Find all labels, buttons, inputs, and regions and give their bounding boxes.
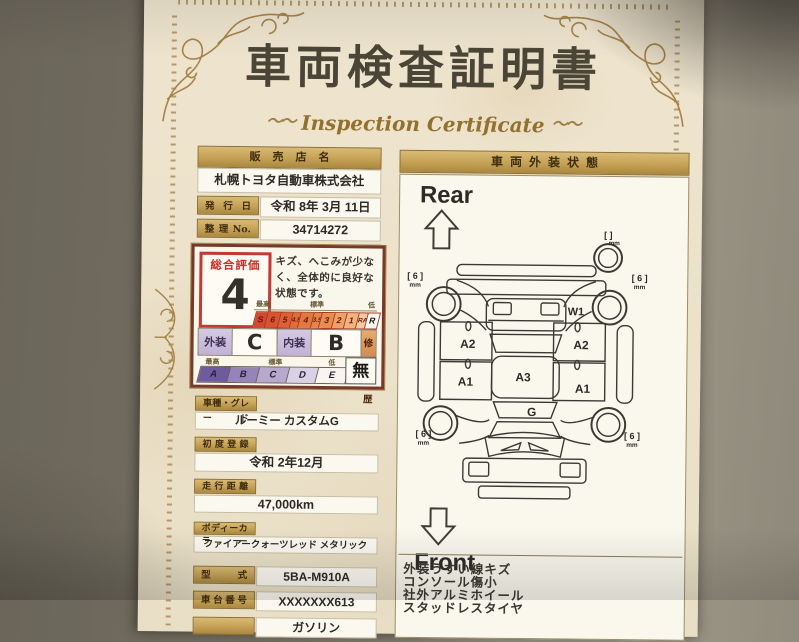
zone-label-a3: A3 <box>515 370 531 384</box>
issue-date-value: 令和 8年 3月 11日 <box>260 196 381 218</box>
zone-label-a2: A2 <box>573 338 589 352</box>
letter-scale-cell: B <box>227 367 260 382</box>
letter-scale-cell: C <box>257 367 290 382</box>
zone-label-w1: W1 <box>568 306 584 318</box>
letter-scale-cell: D <box>286 368 319 383</box>
rating-section: 総合評価 4 キズ、へこみが少なく、全体的に良好な状態です。 最高 標準 低 S… <box>190 244 385 390</box>
field-vehicle-model: 車種・グレード ルーミー カスタムG <box>195 396 379 432</box>
letter-scale: A B C D E <box>196 366 349 385</box>
zone-label-a1: A1 <box>575 382 591 396</box>
field-label: 初度登録 <box>194 437 256 453</box>
certificate: 車両検査証明書 〜〜 Inspection Certificate 〜〜 販売店… <box>138 0 705 637</box>
issue-date-label: 発行日 <box>197 196 259 216</box>
tread-depth-label: [ 6 ] <box>624 431 640 441</box>
legend-high: 最高 <box>256 299 270 309</box>
tread-depth-label: [ 6 ] <box>416 429 432 439</box>
exterior-diagram-panel: Rear Front [ ] mm <box>395 174 690 641</box>
tread-depth-mm: mm <box>418 440 430 447</box>
exterior-panel-header: 車両外装状態 <box>399 150 689 176</box>
interior-label: 内装 <box>276 328 311 356</box>
letter-scale-block: 最高 標準 低 A B C D E <box>198 357 347 385</box>
interior-grade: B <box>310 329 361 358</box>
page-subtitle: Inspection Certificate <box>301 111 545 138</box>
subtitle-flourish-right: 〜〜 <box>551 114 579 133</box>
serial-number-value: 34714272 <box>260 219 381 241</box>
zone-label-g: G <box>527 405 536 419</box>
field-value: 5BA-M910A <box>256 566 377 587</box>
legend-standard: 標準 <box>310 300 324 310</box>
repair-history-label: 修復歴 <box>360 329 376 357</box>
exterior-interior-row: 外装 C 内装 B 修復歴 <box>198 328 376 358</box>
repair-history-value: 無 <box>345 357 376 384</box>
tread-depth-label: [ 6 ] <box>407 271 423 281</box>
field-label: 車種・グレード <box>195 396 257 412</box>
tread-depth-mm: mm <box>626 442 638 449</box>
zone-label-a1: A1 <box>458 375 474 389</box>
letter-scale-cell: A <box>197 367 230 382</box>
tread-depth-mm: mm <box>634 284 646 291</box>
rear-arrow-icon <box>425 210 457 248</box>
dealer-name: 札幌トヨタ自動車株式会社 <box>197 168 381 195</box>
tread-depth-mm: mm <box>409 282 421 289</box>
field-first-registration: 初度登録 令和 2年12月 <box>194 437 378 474</box>
field-label: ボディーカラー <box>194 522 256 536</box>
rear-label: Rear <box>420 181 473 209</box>
exterior-grade: C <box>231 328 277 356</box>
field-value: ファイアークォーツレッド メタリック <box>193 536 377 555</box>
exterior-label: 外装 <box>197 328 232 356</box>
vehicle-info-column: 販売店名 札幌トヨタ自動車株式会社 発行日 令和 8年 3月 11日 整理No.… <box>193 146 382 639</box>
field-label: 走行距離 <box>194 479 256 495</box>
field-value: XXXXXXX613 <box>256 591 377 612</box>
field-label <box>193 617 255 636</box>
field-value: 47,000km <box>194 495 378 515</box>
zone-label-a2: A2 <box>460 337 476 351</box>
rating-comment: キズ、へこみが少なく、全体的に良好な状態です。 <box>275 254 377 302</box>
field-label: 型式 <box>193 566 255 585</box>
exterior-condition-column: 車両外装状態 Rear Front [ ] mm <box>395 150 690 641</box>
field-chassis-number: 車台番号 XXXXXXX613 <box>193 591 377 613</box>
grade-scale-cell: R <box>365 313 380 328</box>
tread-depth-label: [ 6 ] <box>632 273 648 283</box>
field-mileage: 走行距離 47,000km <box>194 479 378 515</box>
spare-wheel-inner <box>599 248 618 267</box>
spare-wheel-bracket: [ ] <box>604 230 613 240</box>
field-body-color: ボディーカラー ファイアークォーツレッド メタリック <box>193 522 377 555</box>
field-value: 令和 2年12月 <box>194 453 378 474</box>
grade-scale-legend: 最高 標準 低 <box>254 299 377 311</box>
serial-number-label: 整理No. <box>197 219 259 239</box>
subtitle-flourish-left: 〜〜 <box>266 111 294 130</box>
edge-medallion-icon <box>150 279 185 399</box>
letter-scale-cell: E <box>316 368 348 383</box>
field-model-code: 型式 5BA-M910A <box>193 566 377 588</box>
dealer-header: 販売店名 <box>197 146 381 170</box>
issue-date-row: 発行日 令和 8年 3月 11日 <box>197 196 381 219</box>
legend-low: 低 <box>368 300 375 310</box>
grade-scale: S 6 5 4.5 4 3.5 3 2 1 RA R <box>252 311 381 329</box>
field-value: ガソリン <box>256 617 377 638</box>
field-fuel: ガソリン <box>193 617 377 639</box>
front-arrow-icon <box>422 508 454 544</box>
page-subtitle-row: 〜〜 Inspection Certificate 〜〜 <box>143 109 703 139</box>
serial-number-row: 整理No. 34714272 <box>197 219 381 242</box>
spare-wheel-mm: mm <box>608 240 620 247</box>
page-title: 車両検査証明書 <box>143 29 704 101</box>
